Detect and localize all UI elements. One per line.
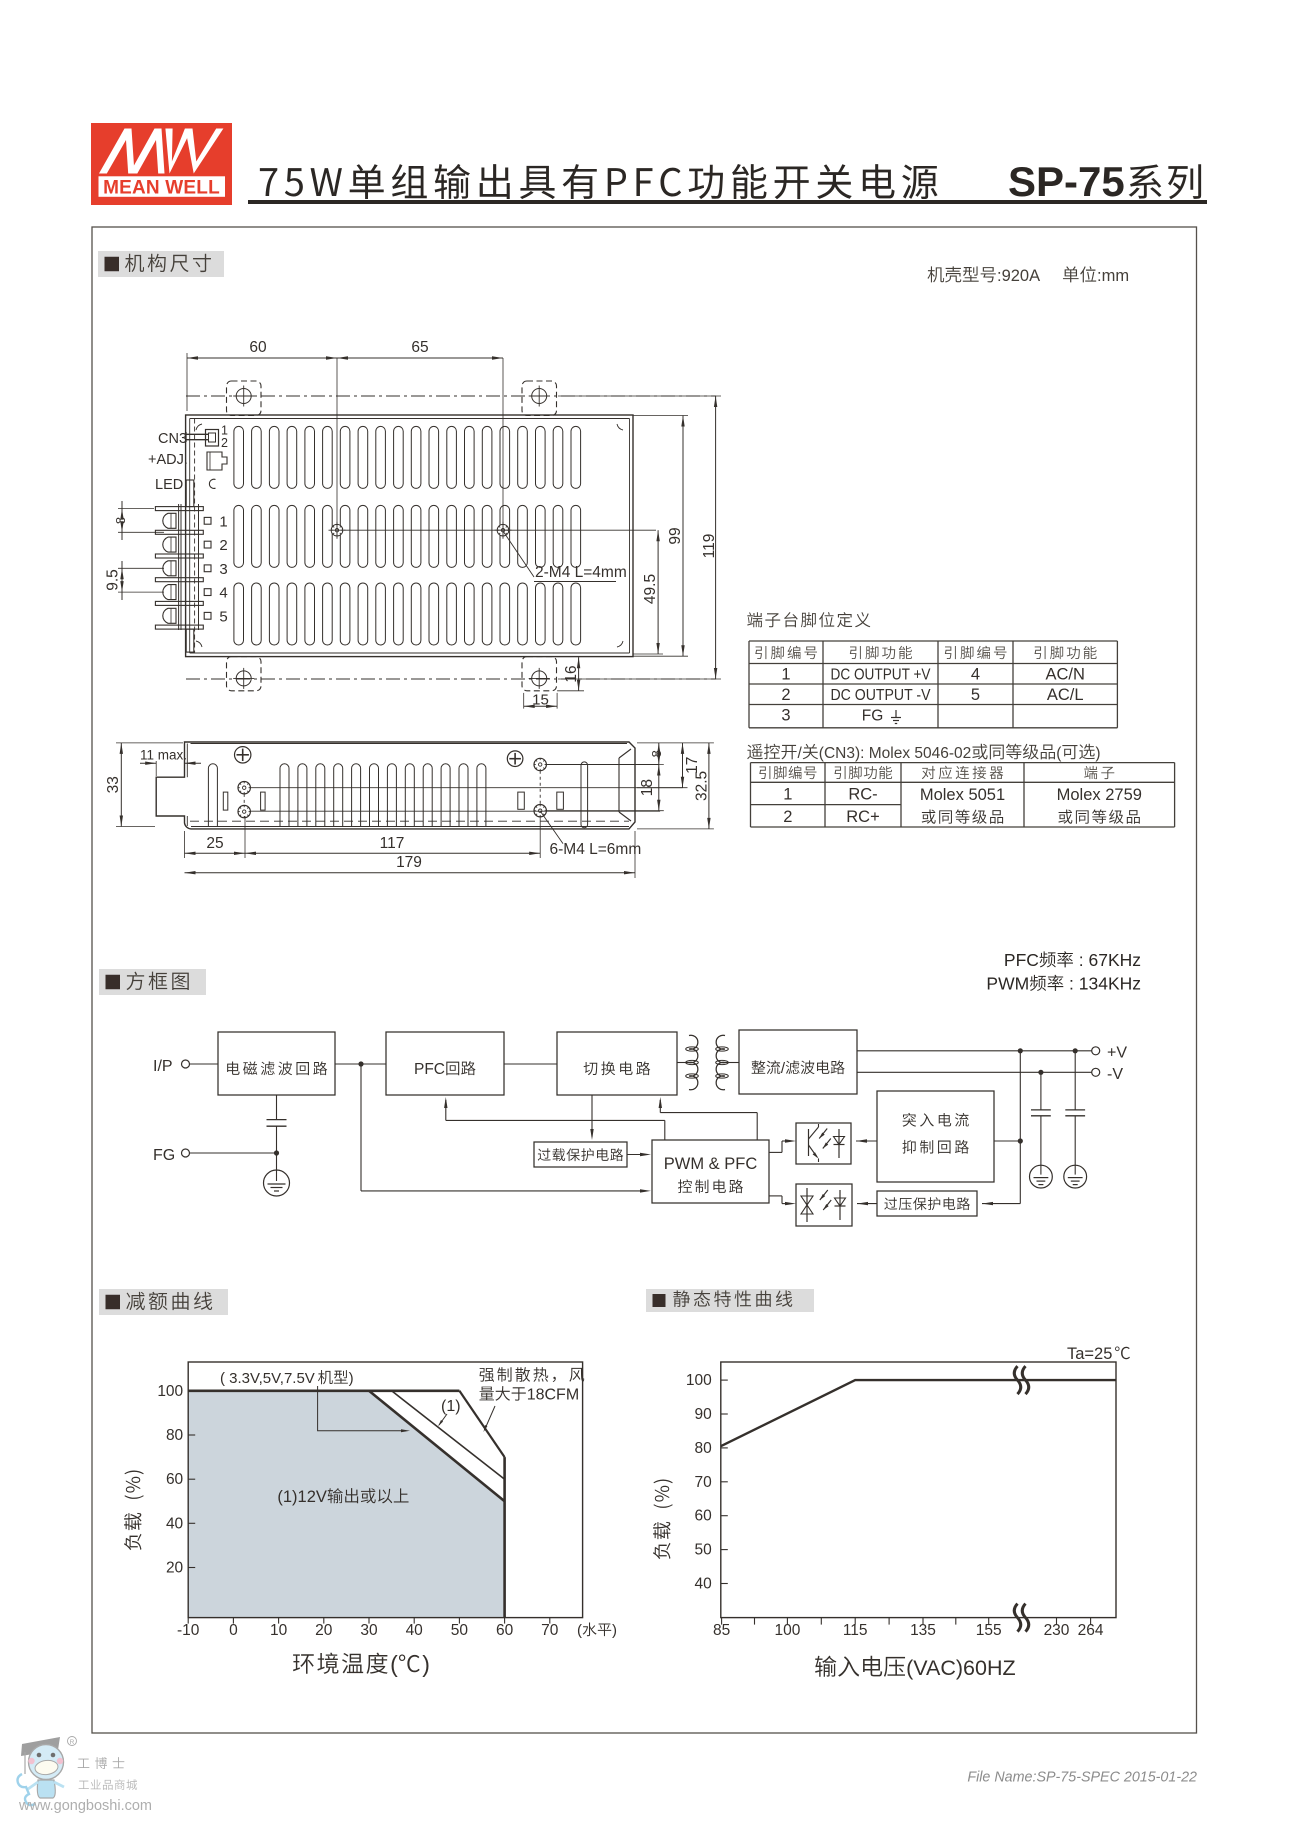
svg-text:PFC: PFC <box>1004 950 1039 970</box>
svg-text:Molex 2759: Molex 2759 <box>1057 786 1142 804</box>
svg-text:(: ( <box>1056 745 1062 762</box>
svg-text:32.5: 32.5 <box>694 771 711 801</box>
svg-text:2: 2 <box>221 436 228 450</box>
svg-text:179: 179 <box>396 854 422 871</box>
svg-text:90: 90 <box>695 1406 713 1423</box>
svg-text:117: 117 <box>380 835 405 852</box>
svg-text:I/P: I/P <box>153 1058 173 1075</box>
svg-text:40: 40 <box>406 1622 424 1639</box>
svg-text:1: 1 <box>783 786 792 804</box>
svg-text:Molex 5051: Molex 5051 <box>920 786 1005 804</box>
svg-text:R: R <box>70 1739 75 1746</box>
svg-text:PWM: PWM <box>986 974 1029 994</box>
svg-text:9.5: 9.5 <box>105 569 122 591</box>
svg-text:): ) <box>1095 745 1100 762</box>
svg-text:DC OUTPUT +V: DC OUTPUT +V <box>831 667 932 684</box>
svg-text:155: 155 <box>976 1622 1002 1639</box>
svg-text:80: 80 <box>166 1427 184 1444</box>
svg-text:(1): (1) <box>441 1398 461 1415</box>
svg-text:2: 2 <box>781 686 790 704</box>
svg-text:60: 60 <box>496 1622 514 1639</box>
svg-text:119: 119 <box>701 534 718 559</box>
svg-text:25: 25 <box>206 835 223 852</box>
svg-text:www.gongboshi.com: www.gongboshi.com <box>18 1798 152 1814</box>
svg-text:+V: +V <box>1107 1045 1127 1062</box>
svg-text:LED: LED <box>155 477 183 493</box>
svg-text:60: 60 <box>695 1508 713 1525</box>
svg-text:85: 85 <box>713 1622 730 1639</box>
svg-text:/: / <box>798 745 803 762</box>
svg-text:: 134KHz: : 134KHz <box>1064 974 1141 994</box>
svg-text:60: 60 <box>249 339 267 356</box>
svg-text:MEAN WELL: MEAN WELL <box>103 178 220 199</box>
svg-text:RC-: RC- <box>848 786 877 804</box>
svg-text:20: 20 <box>315 1622 333 1639</box>
svg-text:16: 16 <box>563 665 580 682</box>
svg-text:3: 3 <box>781 707 790 725</box>
svg-text:FG: FG <box>153 1147 175 1164</box>
svg-text:): ) <box>612 1622 617 1639</box>
svg-text:2: 2 <box>783 808 792 826</box>
svg-text:15: 15 <box>532 692 549 709</box>
svg-text:File Name:SP-75-SPEC 2015-01-: File Name:SP-75-SPEC 2015-01-22 <box>967 1770 1197 1786</box>
svg-text:65: 65 <box>411 339 428 356</box>
svg-text:): ) <box>422 1651 430 1677</box>
svg-text:1: 1 <box>219 513 227 530</box>
svg-text:0: 0 <box>229 1622 238 1639</box>
svg-text:2-M4 L=4mm: 2-M4 L=4mm <box>535 564 627 581</box>
svg-text:33: 33 <box>105 776 122 793</box>
svg-text:18CFM: 18CFM <box>527 1387 579 1404</box>
svg-text:99: 99 <box>667 527 684 544</box>
svg-text:FG: FG <box>862 708 884 725</box>
svg-text:30: 30 <box>360 1622 378 1639</box>
svg-text:100: 100 <box>686 1372 712 1389</box>
svg-text:PWM & PFC: PWM & PFC <box>664 1155 758 1173</box>
svg-text:3: 3 <box>219 561 227 578</box>
svg-text:SP-75: SP-75 <box>1008 158 1125 205</box>
svg-text:264: 264 <box>1078 1622 1104 1639</box>
svg-text:135: 135 <box>910 1622 936 1639</box>
svg-text:CN3: CN3 <box>158 431 187 447</box>
svg-text:(CN3): Molex 5046-02: (CN3): Molex 5046-02 <box>819 745 971 762</box>
svg-text:6-M4 L=6mm: 6-M4 L=6mm <box>550 841 642 858</box>
svg-text:5: 5 <box>971 686 980 704</box>
svg-text:4: 4 <box>971 666 980 684</box>
svg-text:(1)12V: (1)12V <box>277 1488 327 1506</box>
svg-text:1: 1 <box>781 666 790 684</box>
svg-text:50: 50 <box>695 1542 713 1559</box>
svg-text:AC/L: AC/L <box>1047 686 1084 704</box>
svg-text:PFC: PFC <box>414 1061 445 1078</box>
svg-text:8: 8 <box>113 517 128 524</box>
svg-text::mm: :mm <box>1097 267 1129 285</box>
svg-text:Ta=25: Ta=25 <box>1067 1345 1112 1363</box>
svg-text:40: 40 <box>695 1576 713 1593</box>
svg-text::920A: :920A <box>997 267 1040 285</box>
svg-text:10: 10 <box>270 1622 288 1639</box>
svg-text:(VAC)60HZ: (VAC)60HZ <box>906 1656 1016 1680</box>
svg-text:100: 100 <box>774 1622 800 1639</box>
svg-text:70: 70 <box>695 1474 713 1491</box>
svg-text:20: 20 <box>166 1560 184 1577</box>
svg-text:5: 5 <box>219 608 227 625</box>
svg-text:RC+: RC+ <box>846 808 879 826</box>
svg-text:18: 18 <box>639 779 656 796</box>
svg-text:11 max.: 11 max. <box>140 747 187 762</box>
svg-text:100: 100 <box>157 1383 183 1400</box>
svg-text:+ADJ.: +ADJ. <box>148 452 188 468</box>
svg-text:60: 60 <box>166 1471 184 1488</box>
svg-text:-V: -V <box>1107 1066 1123 1083</box>
svg-text:8: 8 <box>649 750 664 757</box>
svg-text:230: 230 <box>1044 1622 1070 1639</box>
svg-text:(: ( <box>577 1622 582 1639</box>
svg-text:AC/N: AC/N <box>1045 666 1084 684</box>
svg-text:: 67KHz: : 67KHz <box>1074 950 1141 970</box>
svg-text:50: 50 <box>451 1622 469 1639</box>
svg-text:DC OUTPUT -V: DC OUTPUT -V <box>831 687 932 704</box>
svg-text:70: 70 <box>541 1622 559 1639</box>
svg-text:4: 4 <box>219 585 227 602</box>
svg-text:-10: -10 <box>177 1622 200 1639</box>
svg-text:49.5: 49.5 <box>642 574 659 604</box>
svg-text:(: ( <box>390 1651 398 1677</box>
svg-text:40: 40 <box>166 1515 184 1532</box>
svg-text:115: 115 <box>843 1622 868 1639</box>
svg-text:): ) <box>349 1370 354 1387</box>
svg-text:80: 80 <box>695 1440 713 1457</box>
svg-text:2: 2 <box>219 537 227 554</box>
svg-text:( 3.3V,5V,7.5V: ( 3.3V,5V,7.5V <box>220 1370 315 1387</box>
